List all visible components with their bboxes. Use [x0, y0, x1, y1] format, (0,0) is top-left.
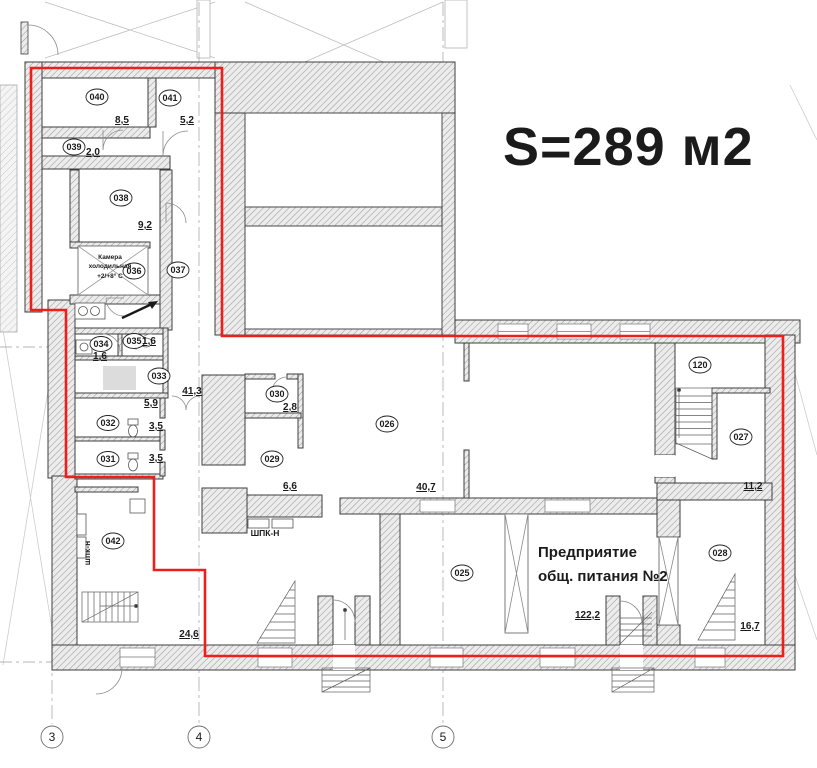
- vent-shaft: [505, 514, 528, 633]
- room-tag-029: 029: [261, 451, 283, 467]
- axis-marker-5: 5: [432, 726, 454, 748]
- adjacent-wall: [0, 85, 17, 332]
- stairs-ramp-028: [698, 574, 735, 640]
- area-034: 1,6: [93, 351, 107, 362]
- area-027: 11,2: [744, 481, 763, 492]
- svg-text:042: 042: [105, 536, 120, 546]
- fire-cabinet-center-1: [248, 519, 269, 528]
- svg-text:031: 031: [100, 454, 115, 464]
- room-tag-030: 030: [266, 386, 288, 402]
- door-exterior-top-left: [21, 22, 58, 55]
- svg-text:038: 038: [113, 193, 128, 203]
- area-038: 9,2: [138, 220, 152, 231]
- room-tag-034: 034: [90, 337, 112, 352]
- room-tag-042: 042: [102, 533, 124, 549]
- door-vestibule-right: [620, 601, 642, 623]
- area-035: 1,6: [142, 336, 156, 347]
- area-029: 6,6: [283, 481, 297, 492]
- svg-text:041: 041: [162, 93, 177, 103]
- svg-text:120: 120: [692, 360, 707, 370]
- svg-text:5: 5: [440, 730, 447, 744]
- area-039: 2,0: [86, 147, 100, 158]
- sink-034: [76, 340, 92, 354]
- svg-text:034: 034: [93, 339, 108, 349]
- room-tag-028: 028: [709, 545, 731, 561]
- svg-text:029: 029: [264, 454, 279, 464]
- floor-plan-canvas: 040 041 039 038 036 037 034 035 033 032 …: [0, 0, 817, 768]
- enterprise-label-line2: общ. питания №2: [538, 568, 668, 585]
- room-tag-031: 031: [97, 452, 119, 467]
- svg-text:040: 040: [89, 92, 104, 102]
- room-tag-039: 039: [63, 139, 85, 155]
- stairs-042: [82, 592, 138, 622]
- axis-marker-4: 4: [188, 726, 210, 748]
- fire-cabinet-left-1: [77, 514, 86, 535]
- room-tag-041: 041: [159, 90, 181, 106]
- svg-text:035: 035: [126, 336, 141, 346]
- area-040: 8,5: [115, 115, 129, 126]
- floor-plan-drawing: 040 041 039 038 036 037 034 035 033 032 …: [0, 0, 817, 768]
- room-tag-120: 120: [689, 357, 711, 373]
- svg-text:4: 4: [196, 730, 203, 744]
- area-031: 3,5: [149, 453, 163, 464]
- svg-text:025: 025: [454, 568, 469, 578]
- area-enterprise: 122,2: [575, 610, 600, 621]
- svg-text:030: 030: [269, 389, 284, 399]
- axis-markers: 3 4 5: [41, 726, 454, 748]
- room-tag-040: 040: [86, 89, 108, 105]
- axis-marker-3: 3: [41, 726, 63, 748]
- svg-text:3: 3: [49, 730, 56, 744]
- total-area-title: S=289 м2: [503, 117, 754, 177]
- room-tag-025: 025: [451, 565, 473, 581]
- area-hall: 41,3: [182, 386, 202, 397]
- room-tag-033: 033: [148, 368, 170, 384]
- door-041: [163, 131, 188, 156]
- enterprise-label-line1: Предприятие: [538, 544, 637, 561]
- area-026: 40,7: [416, 482, 436, 493]
- area-042: 24,6: [179, 629, 199, 640]
- room-tag-032: 032: [97, 416, 119, 431]
- area-028: 16,7: [740, 621, 760, 632]
- area-030: 2,8: [283, 402, 297, 413]
- svg-text:026: 026: [379, 419, 394, 429]
- stairs-027: [676, 388, 712, 459]
- svg-text:032: 032: [100, 418, 115, 428]
- svg-text:037: 037: [170, 265, 185, 275]
- sink-kitchen: [75, 303, 105, 319]
- raised-floor-033: [103, 366, 136, 390]
- small-duct: [130, 499, 145, 513]
- door-entrance-left: [96, 668, 122, 694]
- room-tag-037: 037: [167, 262, 189, 278]
- area-032: 3,5: [149, 421, 163, 432]
- cold-room-label-line2: холодильная: [89, 263, 132, 270]
- svg-text:028: 028: [712, 548, 727, 558]
- cold-room-label-line3: +2/+8° С: [97, 272, 123, 280]
- area-041: 5,2: [180, 115, 194, 126]
- fire-cabinet-label-left: шпк-н: [82, 541, 92, 565]
- cold-room-label-line1: Камера: [98, 254, 122, 261]
- area-033: 5,9: [144, 398, 158, 409]
- fire-cabinet-label-center: ШПК-Н: [251, 528, 280, 538]
- toilet-031: [128, 453, 138, 471]
- toilet-032: [128, 419, 138, 437]
- room-tag-026: 026: [376, 416, 398, 432]
- svg-text:039: 039: [66, 142, 81, 152]
- room-tag-038: 038: [110, 190, 132, 206]
- stairs-ramp-center: [257, 581, 295, 643]
- fire-cabinet-center-2: [272, 519, 293, 528]
- double-door-corridor: [172, 396, 200, 410]
- svg-text:027: 027: [733, 432, 748, 442]
- svg-text:033: 033: [151, 371, 166, 381]
- room-tag-027: 027: [730, 429, 752, 445]
